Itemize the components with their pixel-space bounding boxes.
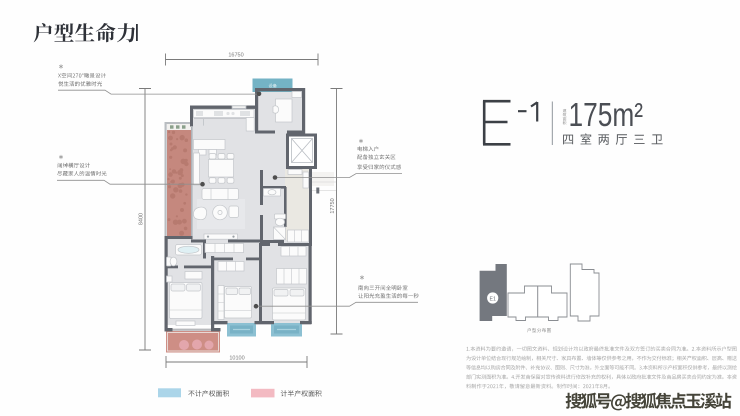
svg-text:E1: E1 xyxy=(490,296,496,302)
svg-text:16750: 16750 xyxy=(228,53,243,59)
svg-text:10100: 10100 xyxy=(229,356,244,362)
svg-text:8400: 8400 xyxy=(139,213,145,225)
svg-text:175m²: 175m² xyxy=(569,96,644,133)
svg-text:17750: 17750 xyxy=(330,198,336,213)
